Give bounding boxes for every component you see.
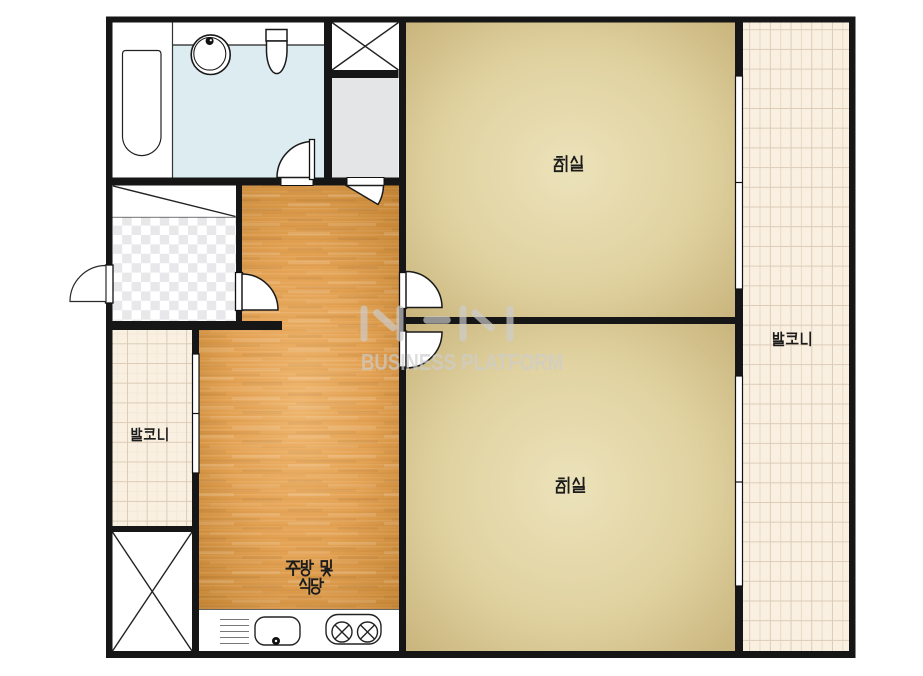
svg-text:BUSINESS PLATFORM: BUSINESS PLATFORM <box>361 349 563 375</box>
